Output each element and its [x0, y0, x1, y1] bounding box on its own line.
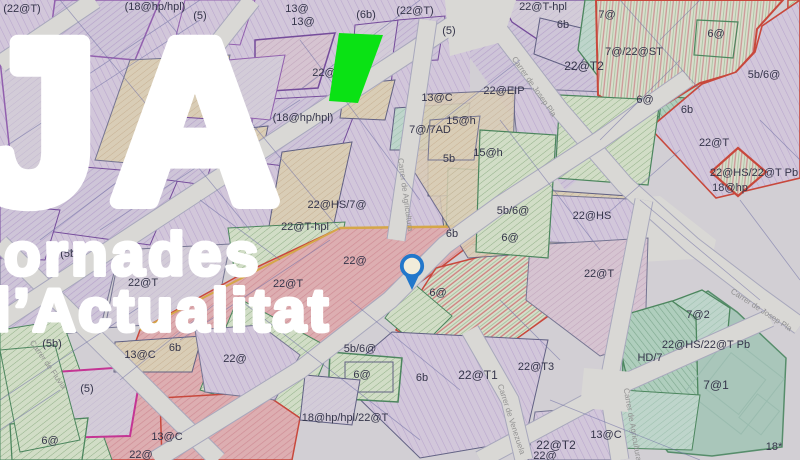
svg-text:JA: JA — [0, 0, 292, 250]
svg-text:l’Actualitat: l’Actualitat — [0, 277, 331, 344]
